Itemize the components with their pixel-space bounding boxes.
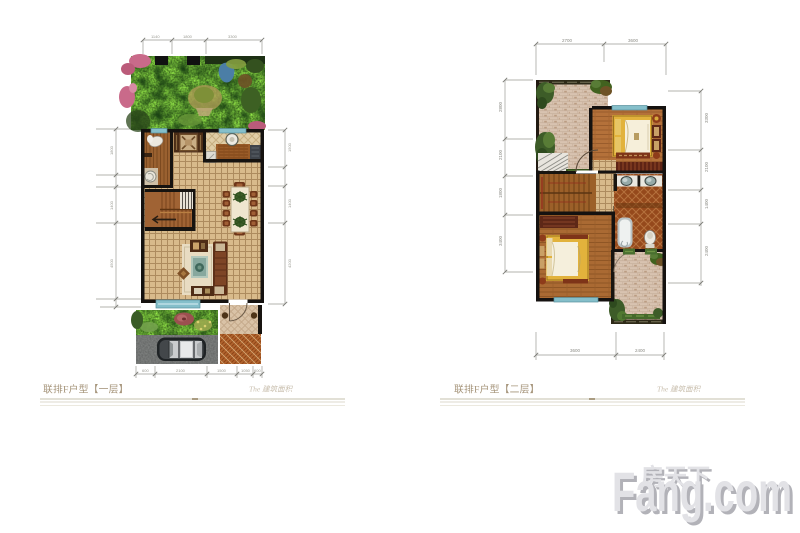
svg-text:1050: 1050 bbox=[241, 368, 251, 373]
svg-text:3300: 3300 bbox=[704, 112, 709, 123]
svg-text:1500: 1500 bbox=[217, 368, 227, 373]
svg-text:联排F户型【二层】: 联排F户型【二层】 bbox=[454, 383, 540, 396]
svg-text:1800: 1800 bbox=[498, 187, 503, 198]
svg-text:4200: 4200 bbox=[287, 258, 292, 268]
svg-text:1800: 1800 bbox=[183, 34, 193, 39]
svg-text:3300: 3300 bbox=[228, 34, 238, 39]
svg-text:2400: 2400 bbox=[635, 348, 646, 353]
svg-text:600: 600 bbox=[142, 368, 149, 373]
svg-text:600: 600 bbox=[254, 368, 261, 373]
svg-text:1800: 1800 bbox=[109, 145, 114, 155]
svg-text:1140: 1140 bbox=[151, 34, 160, 39]
svg-text:2800: 2800 bbox=[498, 101, 503, 112]
svg-text:2700: 2700 bbox=[562, 38, 573, 43]
svg-text:1400: 1400 bbox=[109, 200, 114, 210]
svg-text:2100: 2100 bbox=[176, 368, 186, 373]
svg-text:1500: 1500 bbox=[287, 142, 292, 152]
svg-text:1400: 1400 bbox=[704, 198, 709, 209]
svg-text:The 建筑面积: The 建筑面积 bbox=[657, 385, 702, 394]
svg-text:1400: 1400 bbox=[287, 198, 292, 208]
svg-text:Fang.com: Fang.com bbox=[612, 460, 792, 523]
svg-text:2100: 2100 bbox=[704, 161, 709, 172]
svg-text:The 建筑面积: The 建筑面积 bbox=[249, 385, 294, 394]
svg-text:3400: 3400 bbox=[498, 235, 503, 246]
svg-text:2400: 2400 bbox=[704, 245, 709, 256]
svg-text:3600: 3600 bbox=[570, 348, 581, 353]
svg-text:4500: 4500 bbox=[109, 258, 114, 268]
svg-text:联排F户型【一层】: 联排F户型【一层】 bbox=[43, 383, 129, 396]
svg-text:2100: 2100 bbox=[498, 149, 503, 160]
svg-text:3600: 3600 bbox=[628, 38, 639, 43]
